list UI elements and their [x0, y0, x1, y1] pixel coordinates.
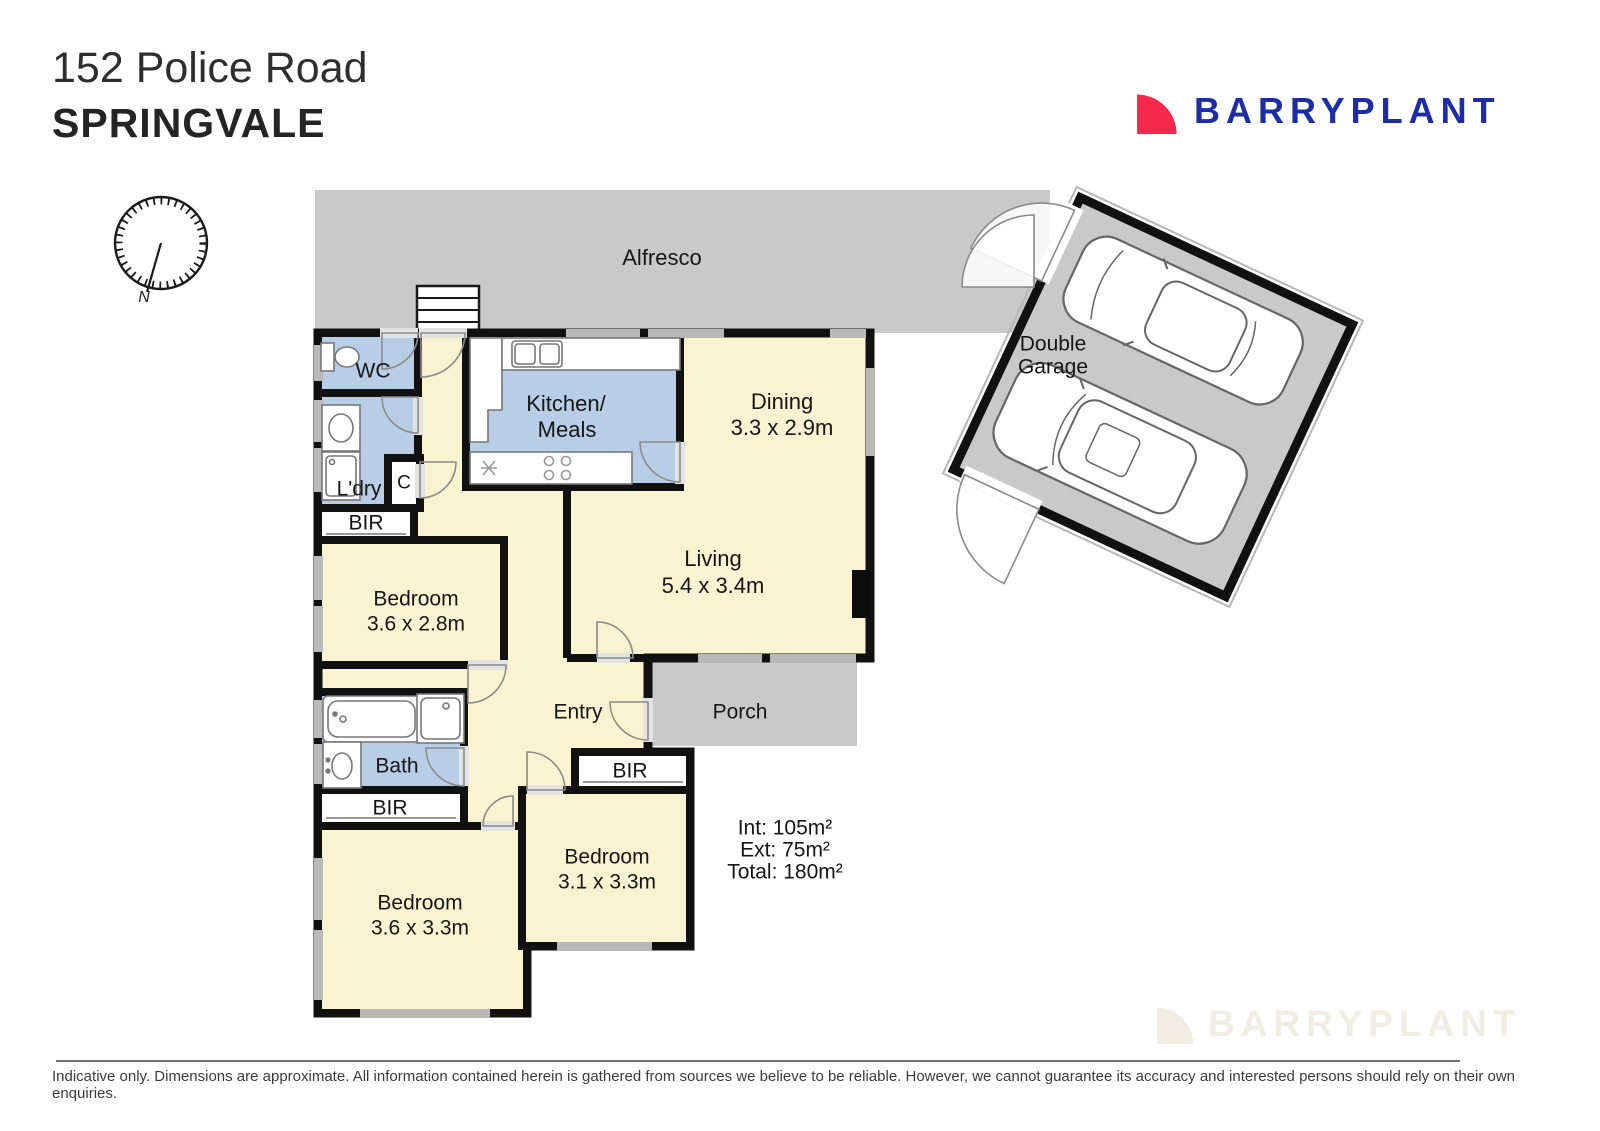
- laundry-trough-icon: [322, 405, 360, 451]
- barryplant-watermark-icon: [1156, 1002, 1200, 1044]
- fireplace: [852, 570, 870, 618]
- footer-disclaimer: Indicative only. Dimensions are approxim…: [52, 1068, 1577, 1102]
- room-dims-dining: 3.3 x 2.9m: [731, 416, 834, 440]
- room-label-kitchen-1: Kitchen/: [526, 392, 606, 416]
- shower-icon: [417, 694, 464, 743]
- room-label-bir3: BIR: [612, 759, 647, 782]
- bath-basin-icon: [323, 742, 361, 788]
- area-total: Total: 180m²: [727, 860, 843, 883]
- room-label-alfresco: Alfresco: [622, 246, 701, 270]
- room-label-garage-1: Double: [1020, 332, 1087, 355]
- room-label-porch: Porch: [713, 700, 768, 723]
- room-label-garage-2: Garage: [1018, 355, 1088, 378]
- room-label-laundry: L'dry: [337, 477, 382, 500]
- room-dims-bedroom1: 3.6 x 2.8m: [367, 612, 465, 635]
- toilet-icon: [321, 343, 334, 371]
- room-label-kitchen-2: Meals: [538, 418, 597, 442]
- room-dims-bedroom3: 3.1 x 3.3m: [558, 870, 656, 893]
- room-label-bir1: BIR: [348, 511, 383, 534]
- compass-icon: [115, 197, 207, 292]
- bathtub-icon: [323, 696, 420, 742]
- room-dims-living: 5.4 x 3.4m: [662, 574, 765, 598]
- barryplant-logo-text: BARRYPLANT: [1194, 88, 1501, 134]
- floorplan-drawing: [0, 0, 1600, 1131]
- room-label-bedroom1: Bedroom: [373, 587, 458, 610]
- area-external: Ext: 75m²: [740, 838, 830, 861]
- room-label-dining: Dining: [751, 390, 813, 414]
- compass-north-label: N: [138, 289, 150, 307]
- room-label-bedroom3: Bedroom: [564, 845, 649, 868]
- room-label-wc: WC: [356, 359, 391, 382]
- floorplan-page: Alfresco WC L'dry C BIR Kitchen/ Meals D…: [0, 0, 1600, 1131]
- room-label-bir2: BIR: [372, 796, 407, 819]
- steps: [417, 286, 479, 334]
- page-title-address: 152 Police Road: [52, 44, 368, 93]
- footer-divider: [56, 1060, 1460, 1062]
- barryplant-logo: BARRYPLANT: [1136, 88, 1501, 134]
- barryplant-logo-icon: [1136, 88, 1184, 134]
- page-title-suburb: SPRINGVALE: [52, 100, 326, 147]
- room-label-bedroom2: Bedroom: [377, 891, 462, 914]
- room-dims-bedroom2: 3.6 x 3.3m: [371, 916, 469, 939]
- kitchen-bench: [502, 338, 680, 370]
- room-label-bath: Bath: [375, 754, 418, 777]
- room-label-living: Living: [684, 547, 741, 571]
- room-label-closet: C: [397, 474, 411, 495]
- barryplant-watermark: BARRYPLANT: [1156, 1002, 1522, 1046]
- barryplant-watermark-text: BARRYPLANT: [1208, 1002, 1522, 1046]
- room-label-entry: Entry: [553, 700, 602, 723]
- area-internal: Int: 105m²: [738, 816, 833, 839]
